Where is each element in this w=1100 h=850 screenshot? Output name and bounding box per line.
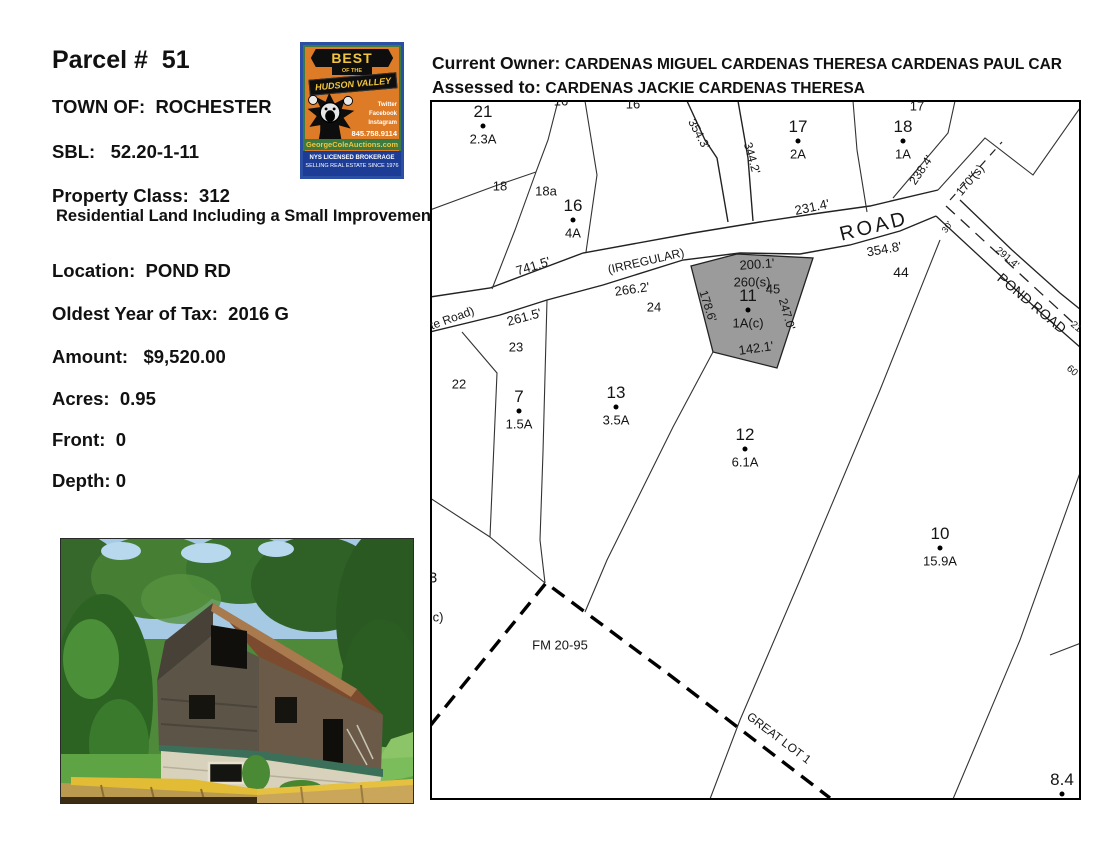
- map-label: 3: [430, 570, 437, 587]
- parcel-number: 10: [931, 524, 950, 544]
- map-label: 18: [493, 179, 507, 194]
- parcel-acreage: 3.5A: [603, 413, 630, 428]
- parcel-dot: [571, 218, 576, 223]
- parcel-acreage: 2A: [790, 147, 806, 162]
- parcel-number-title: Parcel # 51: [52, 46, 190, 75]
- parcel-acreage: 1.5A: [506, 417, 533, 432]
- field-acres: Acres: 0.95: [52, 388, 156, 410]
- field-oldest-tax: Oldest Year of Tax: 2016 G: [52, 303, 289, 325]
- parcel-acreage: 4A: [565, 226, 581, 241]
- logo-banner: BEST: [311, 49, 393, 67]
- map-linework: [430, 100, 1081, 800]
- logo-social-instagram: Instagram: [368, 119, 397, 128]
- logo-footer: NYS LICENSED BROKERAGE SELLING REAL ESTA…: [303, 151, 401, 176]
- property-photo-illustration: [61, 539, 413, 803]
- parcel-dot: [614, 405, 619, 410]
- parcel-acreage: 2.3A: [470, 132, 497, 147]
- current-owner-row: Current Owner: CARDENAS MIGUEL CARDENAS …: [432, 53, 1100, 74]
- logo-social-links: Twitter Facebook Instagram: [368, 101, 397, 128]
- field-sbl: SBL: 52.20-1-11: [52, 141, 199, 163]
- parcel-dot: [743, 447, 748, 452]
- map-label: FM 20-95: [532, 638, 588, 653]
- parcel-dot: [481, 124, 486, 129]
- property-photo: [60, 538, 414, 804]
- tax-map: 1616171818a45442423223c)741.5'(IRREGULAR…: [430, 100, 1081, 800]
- logo-social-twitter: Twitter: [368, 101, 397, 110]
- field-front: Front: 0: [52, 429, 126, 451]
- parcel-acreage: 15.9A: [923, 554, 957, 569]
- parcel-number: 12: [736, 425, 755, 445]
- parcel-number: 21: [474, 102, 493, 122]
- map-label: 16: [554, 100, 568, 109]
- parcel-number: 18: [894, 117, 913, 137]
- current-owner-value: CARDENAS MIGUEL CARDENAS THERESA CARDENA…: [565, 56, 1062, 73]
- current-owner-label: Current Owner:: [432, 53, 560, 73]
- logo-website: GeorgeColeAuctions.com: [303, 139, 401, 150]
- parcel-number: 11: [739, 286, 757, 306]
- parcel-dot: [746, 308, 751, 313]
- parcel-dot: [1060, 792, 1065, 797]
- map-label: 24: [647, 300, 661, 315]
- map-label: c): [433, 610, 444, 625]
- map-label: 17: [910, 100, 924, 114]
- map-label: 44: [893, 264, 909, 280]
- logo-phone: 845.758.9114: [352, 129, 397, 138]
- map-label: 23: [509, 340, 523, 355]
- logo-social-facebook: Facebook: [368, 110, 397, 119]
- assessed-to-row: Assessed to: CARDENAS JACKIE CARDENAS TH…: [432, 77, 1100, 98]
- map-label: 18a: [535, 184, 557, 199]
- map-label: 22: [452, 377, 466, 392]
- parcel-dot: [901, 139, 906, 144]
- parcel-acreage: 6.1A: [732, 455, 759, 470]
- map-label: 200.1': [739, 255, 775, 272]
- parcel-number: 16: [564, 196, 583, 216]
- logo-footer-line1: NYS LICENSED BROKERAGE: [303, 155, 401, 161]
- parcel-dot: [796, 139, 801, 144]
- parcel-number: 17: [789, 117, 808, 137]
- parcel-dot: [517, 409, 522, 414]
- field-depth: Depth: 0: [52, 470, 126, 492]
- field-town-of: TOWN OF: ROCHESTER: [52, 96, 272, 118]
- parcel-dot: [938, 546, 943, 551]
- assessed-to-label: Assessed to:: [432, 77, 541, 97]
- field-location: Location: POND RD: [52, 260, 231, 282]
- auction-logo: BEST OF THE HUDSON VALLEY Twitter Facebo…: [300, 42, 404, 179]
- map-label: 16: [626, 100, 640, 112]
- parcel-number: 13: [607, 383, 626, 403]
- assessed-to-value: CARDENAS JACKIE CARDENAS THERESA: [545, 80, 865, 97]
- logo-footer-line2: SELLING REAL ESTATE SINCE 1976: [303, 163, 401, 169]
- field-amount: Amount: $9,520.00: [52, 346, 226, 368]
- field-property-class: Property Class: 312: [52, 185, 230, 207]
- parcel-acreage: 1A(c): [732, 316, 763, 331]
- field-property-class-desc: Residential Land Including a Small Impro…: [56, 207, 430, 226]
- parcel-number: 7: [514, 387, 523, 407]
- parcel-acreage: 1A: [895, 147, 911, 162]
- parcel-number: 8.4: [1050, 770, 1074, 790]
